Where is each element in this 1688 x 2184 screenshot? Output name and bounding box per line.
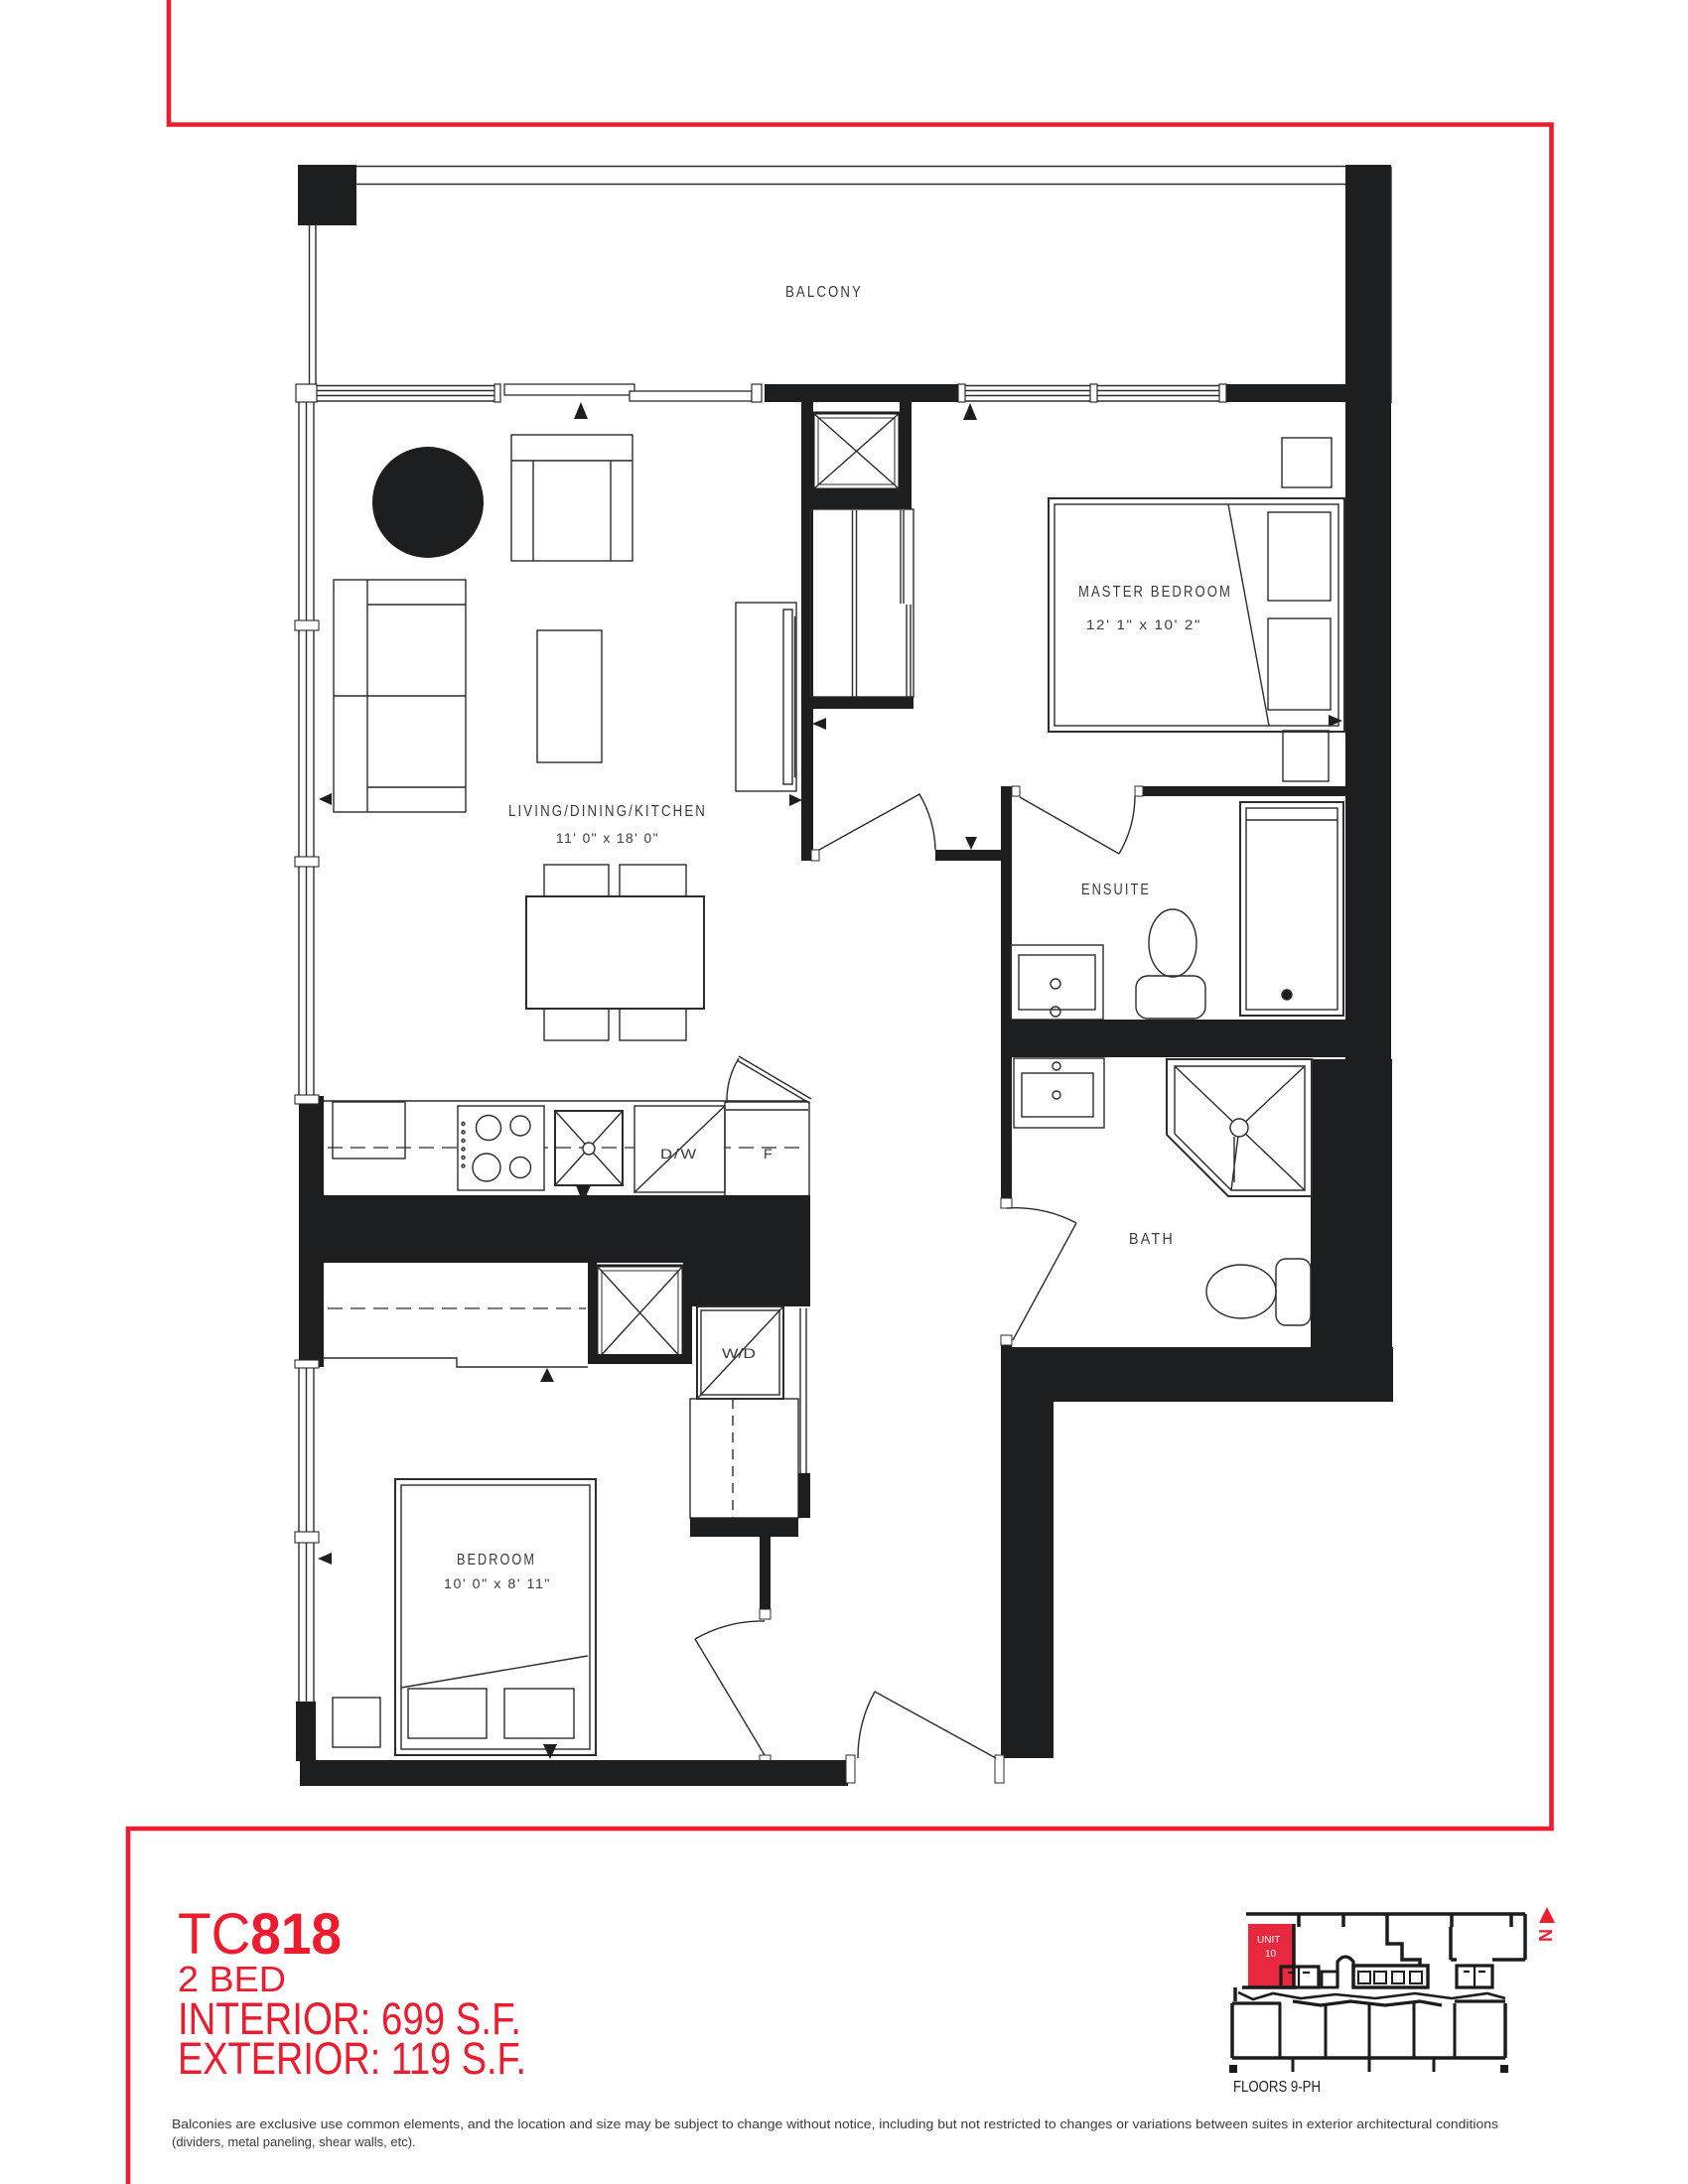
svg-text:10: 10 — [1265, 1949, 1277, 1960]
svg-text:F: F — [764, 1146, 774, 1161]
svg-text:UNIT: UNIT — [1257, 1935, 1280, 1946]
svg-text:BEDROOM: BEDROOM — [457, 1552, 536, 1569]
svg-text:Balconies are exclusive use co: Balconies are exclusive use common eleme… — [172, 2116, 1499, 2131]
svg-text:ENSUITE: ENSUITE — [1081, 882, 1151, 898]
svg-text:D/W: D/W — [660, 1146, 698, 1161]
svg-text:EXTERIOR: 119 S.F.: EXTERIOR: 119 S.F. — [178, 2033, 526, 2084]
svg-text:(dividers, metal paneling, she: (dividers, metal paneling, shear walls, … — [172, 2134, 416, 2149]
svg-text:11' 0" x 18' 0": 11' 0" x 18' 0" — [556, 830, 659, 846]
svg-text:N: N — [1535, 1929, 1555, 1942]
svg-text:TC818: TC818 — [178, 1902, 342, 1967]
svg-text:BATH: BATH — [1129, 1231, 1175, 1248]
svg-text:FLOORS 9-PH: FLOORS 9-PH — [1233, 2079, 1321, 2096]
svg-text:10' 0" x 8' 11": 10' 0" x 8' 11" — [444, 1575, 551, 1591]
svg-text:MASTER BEDROOM: MASTER BEDROOM — [1078, 584, 1232, 601]
svg-text:12' 1" x 10' 2": 12' 1" x 10' 2" — [1086, 616, 1201, 632]
svg-text:LIVING/DINING/KITCHEN: LIVING/DINING/KITCHEN — [508, 803, 707, 820]
svg-text:BALCONY: BALCONY — [785, 284, 863, 301]
svg-text:W/D: W/D — [722, 1346, 756, 1361]
